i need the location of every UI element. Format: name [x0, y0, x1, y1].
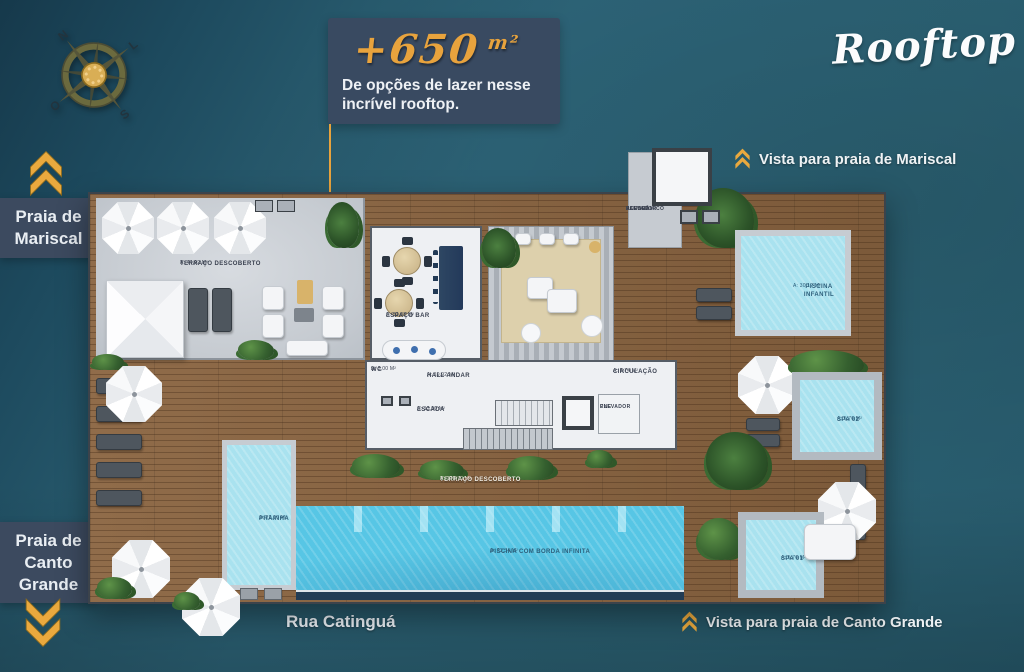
floor-plan: TERRAÇO DESCOBERTOA: 44,92 m² [88, 192, 886, 604]
pouf [581, 315, 603, 337]
plant [698, 518, 742, 560]
area-banner: +650m² De opções de lazer nesse incrível… [328, 18, 560, 124]
sofa [262, 314, 284, 338]
sun-lounger [212, 288, 232, 332]
compass-rose-icon: N L S O [38, 20, 150, 130]
canopy-tent [106, 280, 184, 358]
lounge-chair [563, 233, 579, 245]
area-unit: m² [487, 32, 522, 54]
palm-plant [482, 228, 516, 268]
beach-label-canto-grande: Praia de Canto Grande [0, 522, 97, 603]
elevator-machine [702, 210, 720, 224]
lounge-chair [539, 233, 555, 245]
daybed [804, 524, 856, 560]
plant [238, 340, 274, 360]
elevator-machine [680, 210, 698, 224]
pool-step [264, 588, 282, 600]
low-table [547, 289, 577, 313]
page-title: Rooftop [831, 17, 1013, 73]
wc-fixture [381, 396, 393, 406]
area-subtitle-line2: incrível rooftop. [342, 96, 560, 115]
chair [394, 279, 405, 287]
coffee-table [294, 308, 314, 322]
sun-lounger [96, 490, 142, 506]
sun-lounger [696, 306, 732, 320]
spa-02: SPA 02A: 5,76 m² [792, 372, 882, 460]
lounge-chair [515, 233, 531, 245]
sun-lounger [188, 288, 208, 332]
elevator-pne-room [598, 394, 640, 434]
beach-label-canto-line3: Grande [0, 574, 97, 596]
chair [416, 298, 424, 309]
vista-mariscal: Vista para praia de Mariscal [734, 148, 956, 170]
parasol [157, 202, 209, 254]
sun-lounger [96, 434, 142, 450]
plant [587, 450, 613, 468]
services-band: WCA: 3,00 m² HALL ANDARA: 19,92 m² ESCAD… [365, 360, 677, 450]
street-label: Rua Catinguá [286, 612, 396, 632]
chevron-down-icon [24, 596, 62, 648]
stairs [495, 400, 553, 426]
area-headline: +650m² [352, 26, 563, 73]
plant [92, 354, 124, 370]
stairs [463, 428, 553, 450]
sun-lounger [96, 462, 142, 478]
pouf-gold [589, 241, 601, 253]
panoramic-elevator [652, 148, 712, 206]
sofa [322, 314, 344, 338]
pouf [521, 323, 541, 343]
vista-canto-grande: Vista para praia de Canto Grande [681, 611, 942, 633]
parasol [738, 356, 796, 414]
vista-mariscal-text: Vista para praia de Mariscal [759, 151, 956, 168]
rooftop-poster: N L S O +650m² De opções de lazer nesse … [0, 0, 1024, 672]
area-value: +650 [352, 26, 482, 73]
beach-label-canto-line2: Canto [0, 552, 97, 574]
compass-south-label: S [117, 106, 132, 122]
banner-pointer-line [329, 124, 331, 192]
area-subtitle: De opções de lazer nesse incrível roofto… [342, 77, 560, 115]
sofa [262, 286, 284, 310]
kids-pool: PISCINA INFANTILA: 30,12 m² [735, 230, 851, 336]
parasol [102, 202, 154, 254]
chair [374, 298, 382, 309]
chevron-down-small-icon [681, 611, 698, 633]
round-table [390, 244, 424, 278]
chevron-up-small-icon [734, 148, 751, 170]
beach-mat [297, 280, 313, 304]
area-subtitle-line1: De opções de lazer nesse [342, 77, 560, 96]
infinity-edge-trough [296, 590, 684, 600]
vista-canto-text: Vista para praia de Canto Grande [706, 614, 942, 631]
plant [352, 454, 400, 478]
chevron-up-icon [28, 150, 64, 198]
palm-plant [706, 432, 768, 490]
beach-label-mariscal-line2: Mariscal [0, 228, 97, 250]
sofa [286, 340, 328, 356]
pool-jets [296, 506, 684, 532]
beach-label-mariscal-line1: Praia de [0, 206, 97, 228]
palm-plant [327, 202, 359, 248]
wc-fixture [399, 396, 411, 406]
tabletop [393, 247, 421, 275]
pool-step [240, 588, 258, 600]
chair [402, 237, 413, 245]
curved-bench [382, 340, 446, 360]
sofa [322, 286, 344, 310]
planter [277, 200, 295, 212]
sun-lounger [746, 418, 780, 431]
plant [174, 592, 200, 610]
compass-east-label: L [126, 37, 141, 53]
compass-west-label: O [47, 97, 63, 114]
infinity-pool: PISCINA COM BORDA INFINITAA: 73,34 m² [296, 506, 684, 590]
chair [424, 256, 432, 267]
beach-label-canto-line1: Praia de [0, 530, 97, 552]
bar-counter [439, 246, 463, 310]
prainha-pool: PRAINHAA: 22,16 m² [222, 440, 296, 590]
planter [255, 200, 273, 212]
beach-label-mariscal: Praia de Mariscal [0, 198, 97, 258]
elevator-shaft [562, 396, 594, 430]
plant [97, 577, 132, 599]
compass-north-label: N [55, 27, 71, 43]
chair [382, 256, 390, 267]
sun-lounger [696, 288, 732, 302]
